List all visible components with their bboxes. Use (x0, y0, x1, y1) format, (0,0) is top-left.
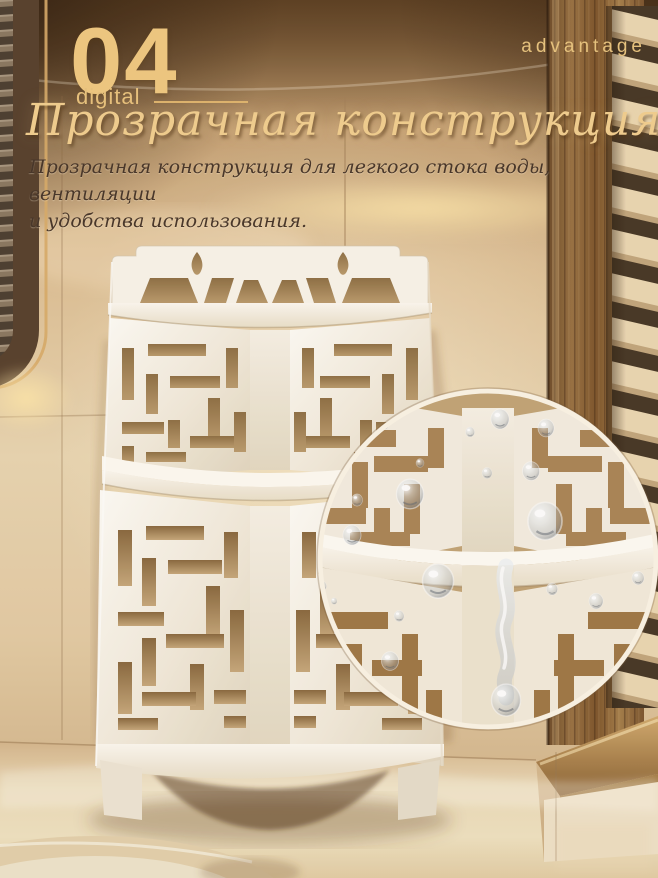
bathroom-scene-illustration (0, 0, 658, 878)
warm-tint-overlay (0, 0, 658, 878)
promo-card: 04 digital advantage Прозрачная конструк… (0, 0, 658, 878)
